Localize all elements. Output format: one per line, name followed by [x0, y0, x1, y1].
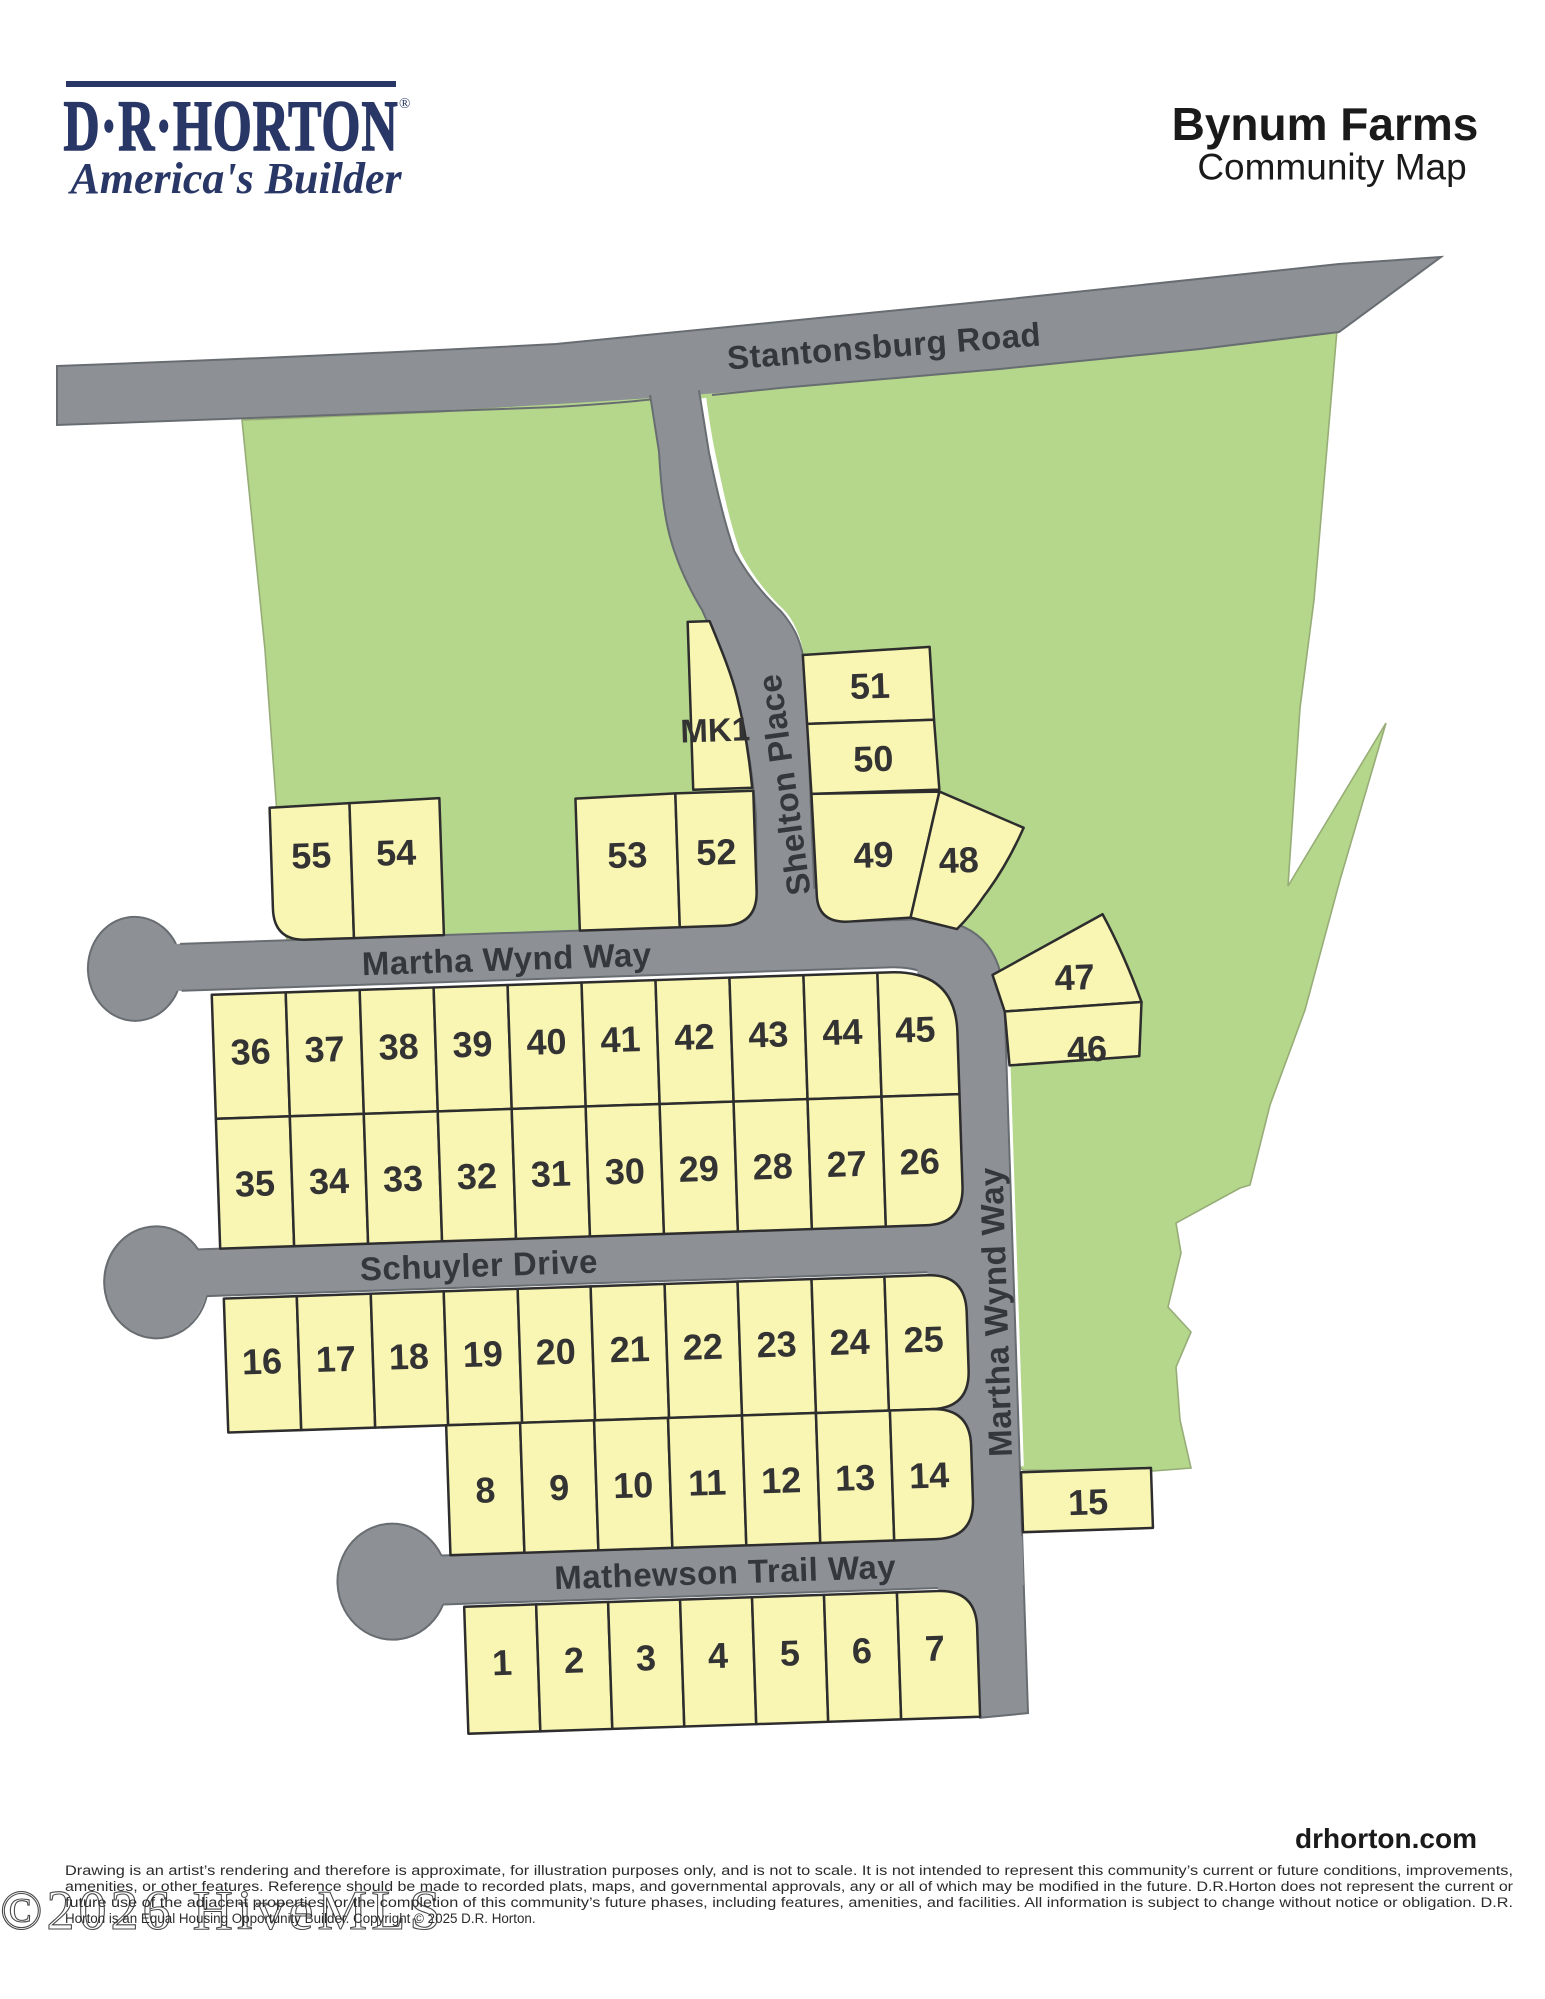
svg-text:3: 3	[635, 1637, 656, 1679]
svg-text:31: 31	[530, 1153, 571, 1195]
svg-text:24: 24	[829, 1321, 870, 1363]
svg-text:1: 1	[491, 1642, 512, 1684]
svg-text:4: 4	[707, 1635, 728, 1677]
svg-text:15: 15	[1067, 1481, 1108, 1523]
svg-text:27: 27	[826, 1143, 867, 1185]
svg-text:32: 32	[456, 1155, 497, 1197]
svg-text:13: 13	[834, 1457, 875, 1499]
svg-text:14: 14	[908, 1454, 949, 1496]
svg-text:47: 47	[1054, 956, 1095, 998]
svg-text:Horton is an Equal Housing Opp: Horton is an Equal Housing Opportunity B…	[65, 1911, 536, 1926]
svg-text:53: 53	[607, 834, 648, 876]
svg-text:22: 22	[682, 1326, 723, 1368]
svg-text:41: 41	[600, 1018, 641, 1060]
svg-text:16: 16	[241, 1340, 282, 1382]
svg-text:45: 45	[895, 1008, 936, 1050]
svg-text:21: 21	[609, 1328, 650, 1370]
svg-text:future use of the adjacent pro: future use of the adjacent properties, o…	[65, 1895, 1513, 1910]
svg-text:6: 6	[851, 1630, 872, 1672]
svg-text:9: 9	[549, 1467, 570, 1509]
svg-text:40: 40	[526, 1021, 567, 1063]
svg-text:28: 28	[752, 1145, 793, 1187]
svg-text:39: 39	[452, 1023, 493, 1065]
svg-text:20: 20	[535, 1330, 576, 1372]
svg-text:Drawing is an artist’s renderi: Drawing is an artist’s rendering and the…	[65, 1863, 1513, 1878]
svg-text:50: 50	[853, 738, 894, 780]
svg-text:America's Builder: America's Builder	[67, 154, 402, 203]
svg-text:55: 55	[290, 834, 331, 876]
svg-text:36: 36	[230, 1030, 271, 1072]
svg-text:11: 11	[687, 1462, 726, 1504]
svg-text:amenities, or other features.: amenities, or other features. Reference …	[65, 1879, 1514, 1894]
svg-text:33: 33	[382, 1157, 423, 1199]
svg-text:5: 5	[779, 1632, 800, 1674]
svg-text:26: 26	[899, 1140, 940, 1182]
svg-text:®: ®	[399, 96, 410, 112]
svg-text:19: 19	[462, 1333, 503, 1375]
svg-text:52: 52	[696, 831, 737, 873]
svg-text:48: 48	[938, 839, 979, 881]
svg-text:10: 10	[613, 1464, 654, 1506]
svg-text:8: 8	[475, 1469, 496, 1511]
svg-text:23: 23	[756, 1323, 797, 1365]
svg-text:2: 2	[563, 1639, 584, 1681]
svg-text:12: 12	[760, 1459, 801, 1501]
svg-text:25: 25	[903, 1318, 944, 1360]
svg-text:51: 51	[849, 665, 890, 707]
svg-text:46: 46	[1066, 1028, 1107, 1070]
svg-text:Bynum Farms: Bynum Farms	[1172, 98, 1479, 150]
svg-text:Community Map: Community Map	[1197, 147, 1466, 188]
svg-text:49: 49	[853, 834, 894, 876]
svg-text:drhorton.com: drhorton.com	[1295, 1823, 1477, 1854]
svg-text:30: 30	[604, 1150, 645, 1192]
svg-text:38: 38	[378, 1025, 419, 1067]
svg-text:18: 18	[388, 1335, 429, 1377]
svg-text:Schuyler Drive: Schuyler Drive	[359, 1243, 598, 1288]
svg-text:35: 35	[234, 1162, 275, 1204]
svg-text:42: 42	[674, 1016, 715, 1058]
svg-text:17: 17	[315, 1338, 356, 1380]
svg-text:43: 43	[748, 1013, 789, 1055]
svg-text:MK1: MK1	[680, 710, 751, 749]
svg-text:7: 7	[924, 1627, 945, 1669]
svg-text:34: 34	[308, 1160, 349, 1202]
svg-text:54: 54	[375, 831, 416, 873]
svg-text:37: 37	[304, 1028, 345, 1070]
svg-text:29: 29	[678, 1148, 719, 1190]
svg-text:44: 44	[822, 1011, 863, 1053]
